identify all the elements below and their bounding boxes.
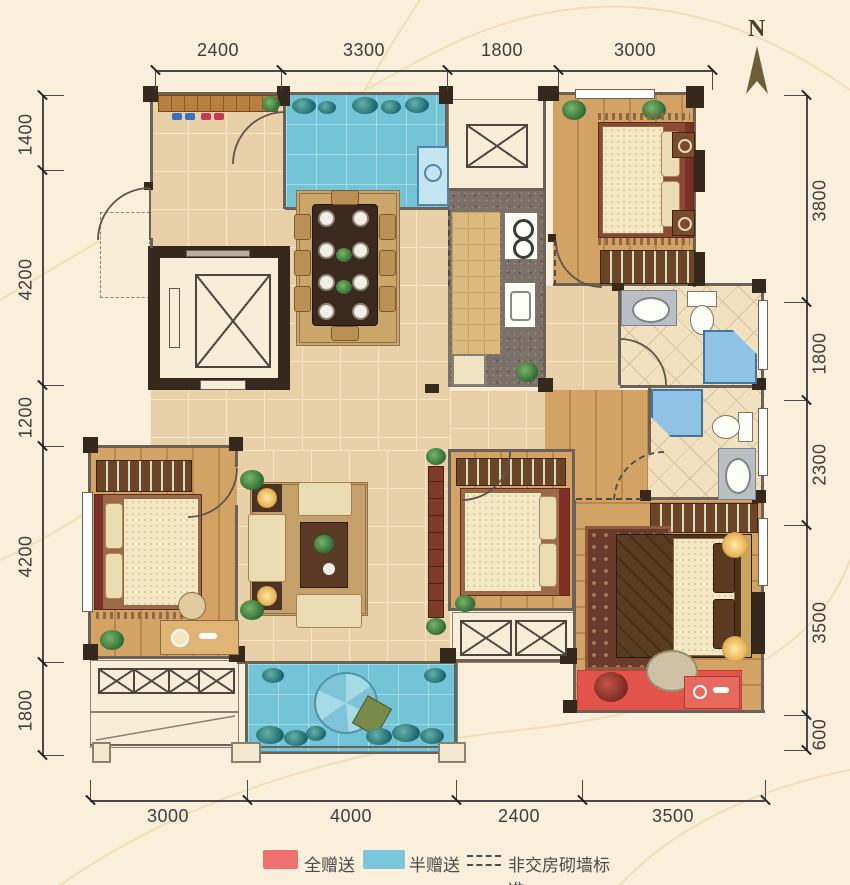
wall-bedroom3-top: [448, 449, 575, 452]
bedroom1-wardrobe: [600, 250, 695, 284]
plant: [262, 96, 280, 112]
dim-line-top: [155, 70, 713, 72]
legend: 全赠送 半赠送 非交房砌墙标准: [260, 848, 620, 874]
washing-machine: [417, 146, 449, 206]
dining-chair: [331, 326, 359, 341]
wall-entry-left-a: [150, 92, 153, 188]
red-plant: [594, 672, 628, 702]
bedroom3-bed: [460, 488, 570, 596]
place-setting: [318, 274, 335, 291]
shoes: [172, 113, 182, 120]
wall-block: [83, 644, 98, 660]
wall-bedroom3-left: [448, 452, 451, 610]
window-bathroom1: [758, 300, 768, 370]
plant: [455, 595, 475, 612]
balcony-plant: [392, 724, 420, 742]
legend-swatch-full-gift: [263, 850, 298, 869]
balcony-plant: [292, 98, 316, 114]
ac-unit-symbol: [460, 620, 512, 656]
balcony-plant: [405, 97, 429, 113]
bedside-lamp: [722, 532, 748, 558]
wall-kitchen-right: [543, 95, 546, 387]
shoes: [201, 113, 211, 120]
kitchen-walkway: [452, 212, 500, 354]
wall-block: [640, 490, 651, 501]
wall-bedroom2-top: [90, 445, 237, 448]
tv-cabinet: [428, 466, 444, 618]
wall-entry-left-b: [150, 238, 153, 248]
plant: [240, 600, 264, 620]
plant: [240, 470, 264, 490]
balcony-plant: [381, 100, 401, 114]
elevator-car: [195, 274, 271, 368]
dim-line-bottom: [90, 800, 765, 802]
elevator-door: [186, 250, 250, 257]
elevator-wall-left: [148, 246, 160, 390]
wall-entry-balcony: [283, 92, 286, 209]
dim-bottom-1: 3000: [128, 806, 208, 827]
wall-master-bottom: [575, 710, 765, 713]
bedroom2-wardrobe: [96, 460, 192, 492]
place-setting: [318, 210, 335, 227]
wall-bath2-left: [648, 387, 651, 453]
balcony-plant: [352, 97, 378, 114]
balcony-plant: [262, 668, 284, 683]
legend-label-half-gift: 半赠送: [409, 851, 460, 876]
dim-bottom-4: 3500: [633, 806, 713, 827]
refrigerator: [452, 354, 486, 386]
dim-right-1: 3800: [810, 161, 831, 241]
balcony-plant: [366, 728, 392, 745]
sofa-small: [296, 594, 362, 628]
wall-block: [425, 384, 439, 393]
legend-label-dashed-wall: 非交房砌墙标准: [508, 851, 620, 885]
balcony-plant: [256, 726, 284, 744]
legend-label-full-gift: 全赠送: [304, 851, 355, 876]
kitchen-sink: [504, 282, 536, 328]
shoes: [185, 113, 195, 120]
bedroom3-wardrobe: [456, 458, 566, 486]
wall-block: [144, 182, 153, 190]
floorplan-canvas: N 2400 3300 1800 3000 3000 4000 2400 350…: [0, 0, 850, 885]
balcony-plant: [424, 668, 446, 683]
bedroom2-desk: [160, 620, 239, 655]
window-bedroom2-bay: [82, 492, 93, 612]
washer-drum: [424, 164, 442, 182]
wall-block: [538, 378, 553, 392]
place-setting: [352, 242, 369, 259]
plant: [100, 630, 124, 650]
plant: [426, 618, 446, 635]
dim-top-3: 1800: [462, 40, 542, 61]
bed-rug-fringe: [598, 113, 690, 120]
wall-block: [440, 648, 456, 663]
planter-lattice: [198, 668, 235, 694]
nightstand: [672, 210, 695, 236]
wall-bath-divider: [620, 385, 763, 388]
legend-swatch-dashed-wall: [467, 855, 501, 866]
dim-left-5: 1800: [16, 671, 37, 751]
table-centerpiece: [336, 248, 352, 262]
dining-chair: [379, 214, 396, 240]
wall-block: [83, 437, 98, 453]
planter-lattice: [133, 668, 170, 694]
wall-balcony2-top: [237, 661, 456, 664]
sofa-main: [248, 514, 286, 582]
nightstand: [672, 132, 695, 158]
pillar: [92, 742, 111, 763]
wall-master-left: [573, 500, 576, 712]
wall-ac-kitchen: [448, 188, 545, 191]
bath2-vanity: [718, 448, 756, 500]
wall-acbot-bottom: [448, 659, 575, 662]
wall-planter-bottom: [90, 744, 237, 746]
window-bathroom2: [758, 408, 768, 476]
gift-zone-desk: [684, 676, 740, 709]
legend-swatch-half-gift: [363, 850, 405, 869]
balcony-plant: [420, 728, 444, 744]
wall-balcony2-left: [245, 661, 248, 750]
elevator-counterweight: [169, 288, 180, 348]
table-centerpiece: [336, 280, 352, 294]
pillar: [231, 742, 261, 763]
bath2-toilet-bowl: [712, 415, 740, 439]
wall-balcony2-rail-b: [247, 752, 456, 754]
armchair: [298, 482, 352, 516]
north-label: N: [748, 16, 765, 43]
dim-bottom-3: 2400: [479, 806, 559, 827]
dim-line-left: [42, 95, 44, 755]
hall-floor: [450, 390, 545, 452]
dining-chair: [379, 286, 396, 312]
balcony-plant: [306, 726, 326, 741]
dim-left-2: 4200: [16, 240, 37, 320]
stair-landing: [100, 212, 150, 298]
wall-block: [563, 700, 577, 713]
ac-unit-symbol: [515, 620, 567, 656]
wall-block: [752, 279, 766, 293]
dining-chair: [294, 250, 311, 276]
plant: [516, 362, 538, 382]
shoe-bench: [158, 95, 278, 112]
place-setting: [352, 303, 369, 320]
dim-right-2: 1800: [810, 314, 831, 394]
place-setting: [352, 210, 369, 227]
dining-chair: [331, 190, 359, 205]
dim-right-3: 2300: [810, 425, 831, 505]
dim-top-1: 2400: [178, 40, 258, 61]
place-setting: [318, 303, 335, 320]
plant: [562, 100, 586, 120]
desk-chair: [178, 592, 206, 620]
dim-top-4: 3000: [595, 40, 675, 61]
wall-block: [686, 86, 704, 108]
bath1-vanity: [621, 290, 677, 326]
bed-rug-fringe: [598, 238, 690, 245]
window-master: [758, 518, 768, 586]
balcony-plant: [318, 101, 336, 114]
wall-block: [229, 437, 243, 451]
pillar: [438, 742, 466, 763]
bedside-lamp: [722, 636, 748, 662]
bath2-toilet: [738, 412, 753, 442]
planter-lattice: [98, 668, 135, 694]
dim-line-right: [806, 95, 808, 750]
dim-right-5: 600: [810, 695, 831, 775]
wall-block: [538, 86, 559, 101]
wall-block: [439, 86, 453, 104]
balcony-plant: [284, 730, 308, 746]
place-setting: [352, 274, 369, 291]
shoes: [214, 113, 224, 120]
dining-chair: [294, 214, 311, 240]
plant: [426, 448, 446, 465]
dim-left-3: 1200: [16, 378, 37, 458]
dim-bottom-2: 4000: [311, 806, 391, 827]
elevator-wall-right: [278, 246, 290, 390]
window-bedroom1-top: [575, 89, 655, 99]
wall-block: [548, 234, 556, 242]
coffee-table: [300, 522, 348, 588]
place-setting: [318, 242, 335, 259]
elevator-sill: [200, 380, 246, 390]
dim-right-4: 3500: [810, 583, 831, 663]
dining-chair: [294, 286, 311, 312]
wall-bedroom2-bottom: [90, 656, 237, 659]
dim-left-4: 4200: [16, 517, 37, 597]
cooktop: [504, 212, 538, 260]
wall-balcony2-rail-a: [247, 746, 456, 748]
dim-top-2: 3300: [324, 40, 404, 61]
bath-hall-floor: [545, 285, 620, 390]
wall-balcony2-right: [454, 661, 457, 750]
ac-unit-symbol: [466, 124, 528, 168]
planter-box: [90, 712, 239, 748]
dim-left-1: 1400: [16, 95, 37, 175]
dining-chair: [379, 250, 396, 276]
